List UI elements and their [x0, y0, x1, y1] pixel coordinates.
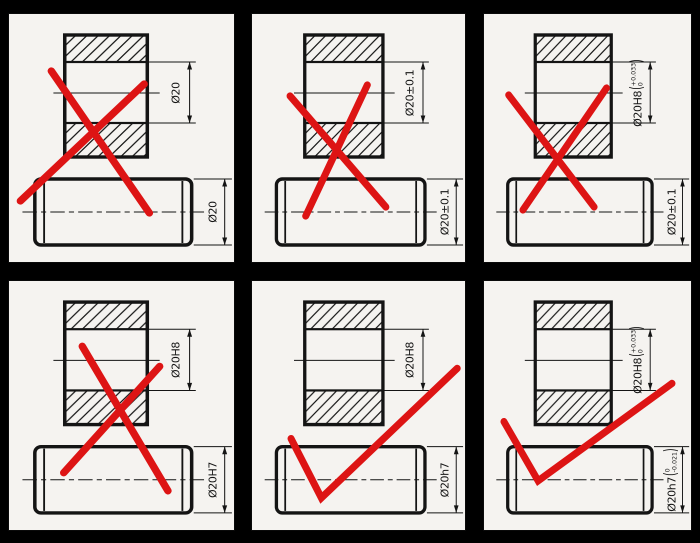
- arrow-up-icon: [421, 62, 426, 70]
- arrow-up-icon: [187, 62, 192, 70]
- shaft-dimension-label: Ø20±0.1: [440, 189, 451, 236]
- shaft-dimension-text: Ø20±0.1: [666, 189, 677, 236]
- shaft-dimension-label: Ø20±0.1: [666, 189, 677, 236]
- bushing-top-hatch-band: [65, 302, 148, 329]
- panel-bottom-right-correct: Ø20H8 ( +0.033 0 ) Ø20h7 ( 0 -0.021 ): [483, 280, 692, 531]
- arrow-down-icon: [648, 116, 653, 124]
- shaft-dimension-label: Ø20: [208, 201, 219, 222]
- hole-tolerance-stack: ( +0.033 0 ): [631, 326, 644, 357]
- panel-bottom-left-incorrect: Ø20H8 Ø20H7: [8, 280, 235, 531]
- arrow-up-icon: [421, 329, 426, 337]
- arrow-up-icon: [680, 179, 685, 187]
- hole-dimension-label: Ø20H8 ( +0.033 0 ): [631, 59, 644, 127]
- arrow-down-icon: [222, 238, 227, 246]
- shaft-drawing: [265, 179, 463, 245]
- tolerance-lower-deviation: -0.021: [672, 452, 679, 472]
- hole-dimension-label: Ø20H8 ( +0.033 0 ): [631, 326, 644, 394]
- technical-drawing: [8, 13, 235, 263]
- hole-dimension-text: Ø20H8: [632, 358, 643, 394]
- paren-open: (: [664, 472, 681, 476]
- paren-close: ): [629, 326, 646, 330]
- shaft-dimension-label: Ø20H7: [208, 462, 219, 498]
- shaft-dimension-text: Ø20H7: [208, 462, 219, 498]
- technical-drawing: [8, 280, 235, 531]
- arrow-down-icon: [680, 505, 685, 513]
- figure-grid: Ø20 Ø20: [0, 0, 700, 543]
- arrow-up-icon: [454, 179, 459, 187]
- technical-drawing: [251, 280, 466, 531]
- arrow-down-icon: [187, 116, 192, 124]
- shaft-drawing: [22, 179, 231, 245]
- technical-drawing: [251, 13, 466, 263]
- paren-close: ): [629, 59, 646, 63]
- hole-dimension-label: Ø20: [170, 82, 181, 103]
- arrow-down-icon: [680, 238, 685, 246]
- arrow-up-icon: [648, 329, 653, 337]
- shaft-tolerance-stack: ( 0 -0.021 ): [665, 448, 678, 476]
- shaft-drawing: [22, 447, 231, 513]
- arrow-down-icon: [187, 383, 192, 391]
- shaft-dimension-label: Ø20h7: [440, 462, 451, 497]
- panel-top-right-incorrect: Ø20H8 ( +0.033 0 ) Ø20±0.1: [483, 13, 692, 263]
- technical-drawing: [483, 13, 692, 263]
- bushing-top-hatch-band: [305, 35, 383, 62]
- hole-dimension-label: Ø20H8: [405, 342, 416, 378]
- bushing-top-hatch-band: [305, 302, 383, 329]
- arrow-up-icon: [222, 179, 227, 187]
- hole-tolerance-stack: ( +0.033 0 ): [631, 59, 644, 90]
- arrow-down-icon: [222, 505, 227, 513]
- hole-dimension-text: Ø20±0.1: [405, 69, 416, 116]
- arrow-down-icon: [421, 116, 426, 124]
- panel-top-center-incorrect: Ø20±0.1 Ø20±0.1: [251, 13, 466, 263]
- shaft-dimension-text: Ø20h7: [440, 462, 451, 497]
- bushing-top-hatch-band: [535, 35, 611, 62]
- panel-top-left-incorrect: Ø20 Ø20: [8, 13, 235, 263]
- arrow-up-icon: [648, 62, 653, 70]
- shaft-dimension-label: Ø20h7 ( 0 -0.021 ): [665, 448, 678, 511]
- panel-bottom-center-correct: Ø20H8 Ø20h7: [251, 280, 466, 531]
- arrow-up-icon: [454, 447, 459, 455]
- shaft-dimension-text: Ø20±0.1: [440, 189, 451, 236]
- bushing-bottom-hatch-band: [535, 390, 611, 424]
- tolerance-lower-deviation: 0: [638, 330, 645, 353]
- hole-dimension-label: Ø20±0.1: [405, 69, 416, 116]
- bushing-bottom-hatch-band: [305, 390, 383, 424]
- paren-open: (: [629, 353, 646, 357]
- shaft-dimension-text: Ø20h7: [666, 477, 677, 512]
- arrow-up-icon: [187, 329, 192, 337]
- bushing-top-hatch-band: [535, 302, 611, 329]
- hole-dimension-label: Ø20H8: [170, 342, 181, 378]
- paren-open: (: [629, 86, 646, 90]
- hole-dimension-text: Ø20H8: [405, 342, 416, 378]
- arrow-down-icon: [454, 505, 459, 513]
- arrow-down-icon: [454, 238, 459, 246]
- technical-drawing: [483, 280, 692, 531]
- arrow-up-icon: [222, 447, 227, 455]
- hole-dimension-text: Ø20: [170, 82, 181, 103]
- tolerance-lower-deviation: 0: [638, 62, 645, 85]
- bushing-top-hatch-band: [65, 35, 148, 62]
- shaft-dimension-text: Ø20: [208, 201, 219, 222]
- paren-close: ): [664, 448, 681, 452]
- arrow-down-icon: [648, 383, 653, 391]
- arrow-down-icon: [421, 383, 426, 391]
- hole-dimension-text: Ø20H8: [632, 90, 643, 126]
- hole-dimension-text: Ø20H8: [170, 342, 181, 378]
